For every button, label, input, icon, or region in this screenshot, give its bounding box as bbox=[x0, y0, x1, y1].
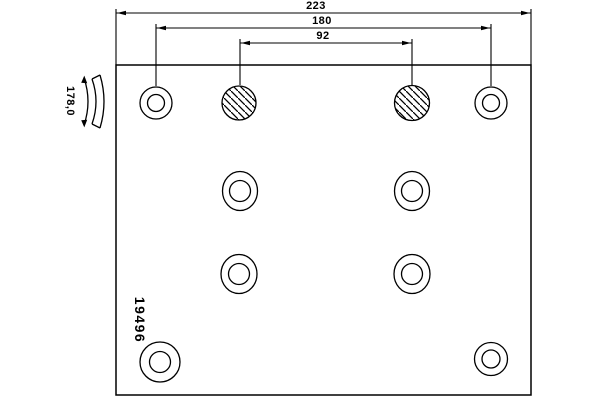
dimension-label-inner-hole-spacing: 92 bbox=[305, 31, 341, 42]
rivet-holes-middle-rows bbox=[221, 172, 430, 294]
rivet-hole bbox=[223, 172, 258, 211]
dimension-label-overall-width: 223 bbox=[296, 1, 336, 12]
rivet-hole bbox=[394, 255, 430, 294]
plate-outline bbox=[116, 65, 531, 395]
profile-arc-arrows bbox=[81, 76, 87, 128]
rivet-holes-top-row bbox=[140, 86, 507, 121]
dimension-label-profile-arc: 178,0 bbox=[64, 86, 76, 116]
hatched-hole bbox=[222, 86, 256, 120]
drawing-geometry bbox=[0, 0, 600, 400]
rivet-holes-bottom-row bbox=[140, 342, 508, 382]
profile-arc-dimension bbox=[84, 78, 88, 125]
rivet-hole bbox=[140, 342, 180, 382]
rivet-hole bbox=[475, 87, 507, 119]
rivet-hole bbox=[475, 343, 508, 376]
rivet-hole bbox=[140, 87, 172, 119]
rivet-hole bbox=[395, 172, 430, 211]
rivet-hole bbox=[221, 255, 257, 294]
hatched-hole bbox=[395, 86, 430, 121]
part-number-stamp: 19496 bbox=[132, 297, 148, 343]
brake-lining-technical-drawing: 223 180 92 178,0 19496 bbox=[0, 0, 600, 400]
dimension-label-outer-hole-spacing: 180 bbox=[302, 16, 342, 27]
